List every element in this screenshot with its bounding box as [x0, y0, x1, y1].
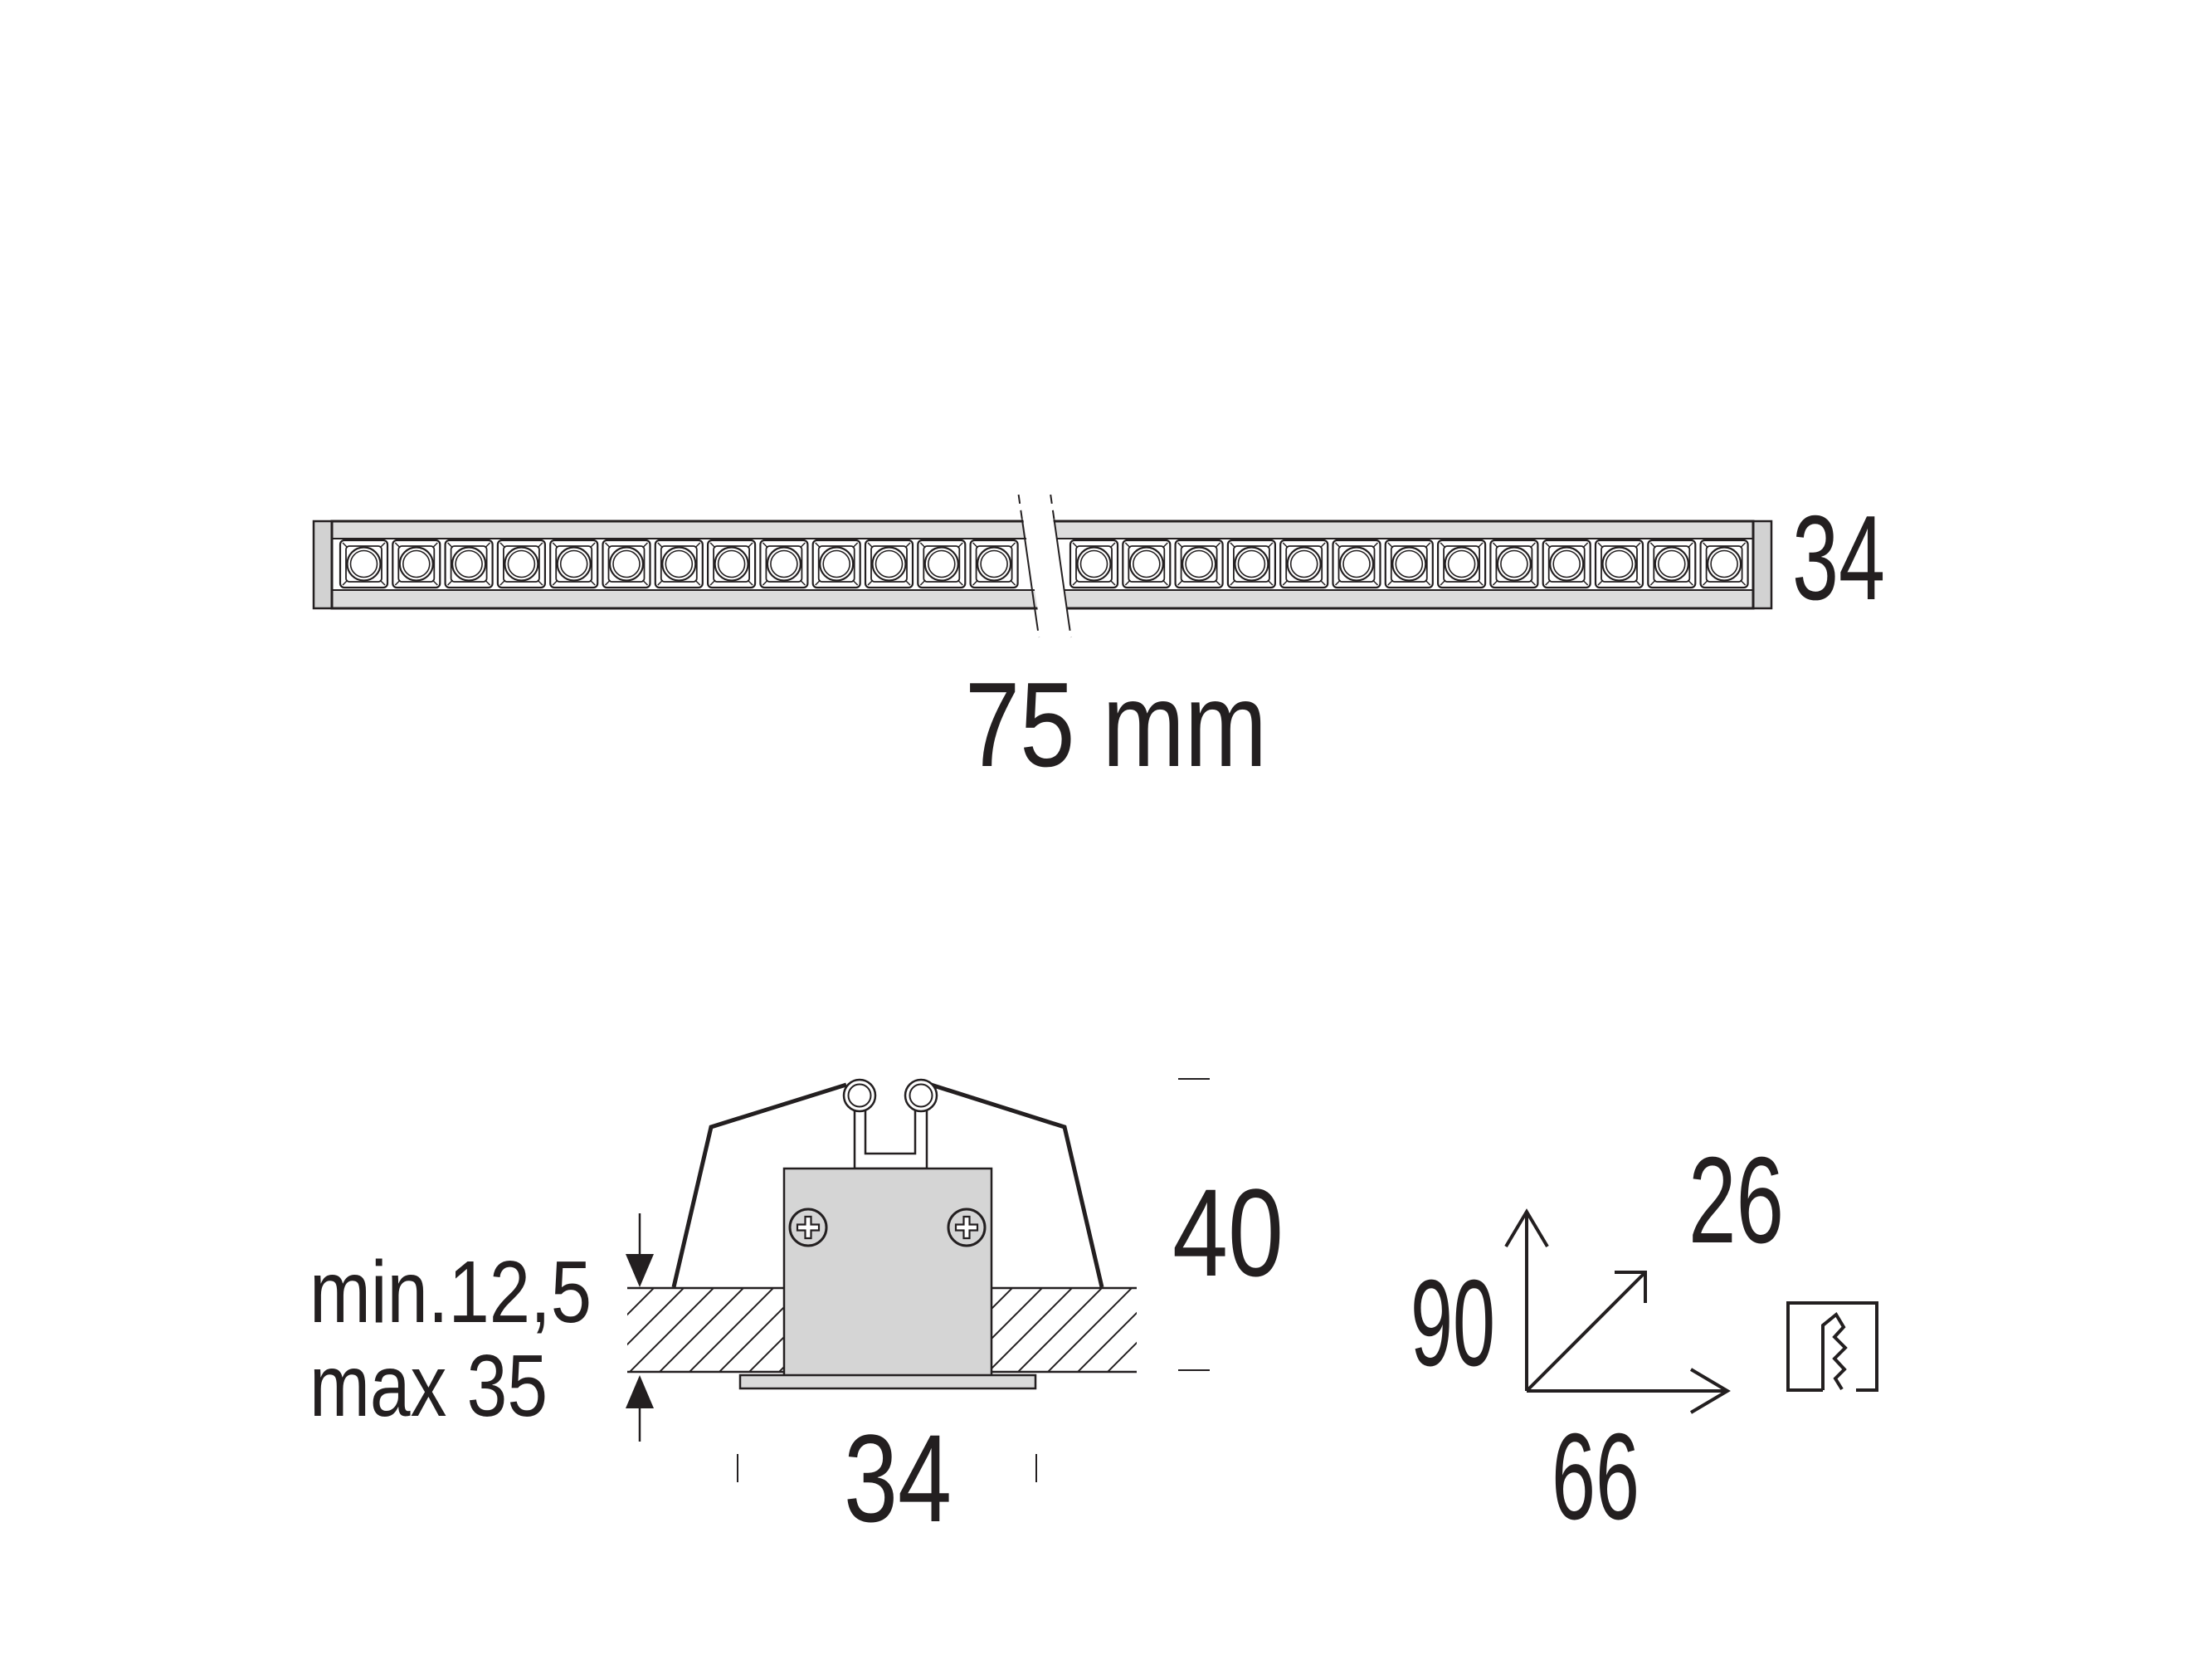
led-cell	[392, 540, 440, 588]
trim-flange	[740, 1375, 1035, 1388]
led-cell	[340, 540, 387, 588]
section-view: min.12,5 max 35 40 34	[309, 1079, 1284, 1548]
horizontal-arrow	[1527, 1369, 1727, 1413]
vertical-arrow	[1506, 1212, 1547, 1391]
led-cell	[708, 540, 755, 588]
led-cell	[918, 540, 965, 588]
dim-height-34: 34	[1792, 490, 1885, 625]
saw-cut-icon	[1788, 1303, 1877, 1390]
spring-loop-left	[844, 1080, 875, 1111]
led-cell	[1228, 540, 1275, 588]
label-90: 90	[1411, 1255, 1495, 1392]
led-cell	[1543, 540, 1591, 588]
led-cell	[865, 540, 913, 588]
led-cell	[498, 540, 545, 588]
fixture-body	[784, 1169, 992, 1376]
end-cap-right	[1753, 521, 1771, 608]
label-26: 26	[1688, 1132, 1784, 1269]
led-cell	[446, 540, 493, 588]
led-cell	[603, 540, 650, 588]
beam-diagram: 90 26 66	[1411, 1132, 1877, 1545]
label-panel-max: max 35	[309, 1337, 548, 1435]
dim-cutout-34: 34	[844, 1408, 952, 1548]
led-cell	[1280, 540, 1328, 588]
led-cell	[813, 540, 860, 588]
led-cell	[1176, 540, 1223, 588]
led-cell	[1648, 540, 1695, 588]
label-66: 66	[1552, 1408, 1640, 1545]
led-cell	[655, 540, 703, 588]
top-view-luminaire: 34 75 mm	[314, 490, 1885, 792]
led-cell	[1070, 540, 1118, 588]
led-cell	[550, 540, 597, 588]
spring-loop-right	[905, 1080, 937, 1111]
led-cell	[1123, 540, 1170, 588]
led-cell	[1701, 540, 1748, 588]
led-cell	[1386, 540, 1433, 588]
led-cell	[1333, 540, 1381, 588]
led-cell	[1490, 540, 1537, 588]
led-cell	[1438, 540, 1485, 588]
dimension-drawing: 34 75 mm	[0, 0, 2212, 1659]
label-panel-min: min.12,5	[309, 1243, 592, 1341]
dim-depth-40: 40	[1172, 1163, 1284, 1302]
dim-length-75mm: 75 mm	[965, 657, 1267, 792]
led-cell	[971, 540, 1018, 588]
diagonal-arrow	[1527, 1272, 1645, 1391]
led-cell	[760, 540, 807, 588]
led-cell	[1596, 540, 1643, 588]
end-cap-left	[314, 521, 332, 608]
